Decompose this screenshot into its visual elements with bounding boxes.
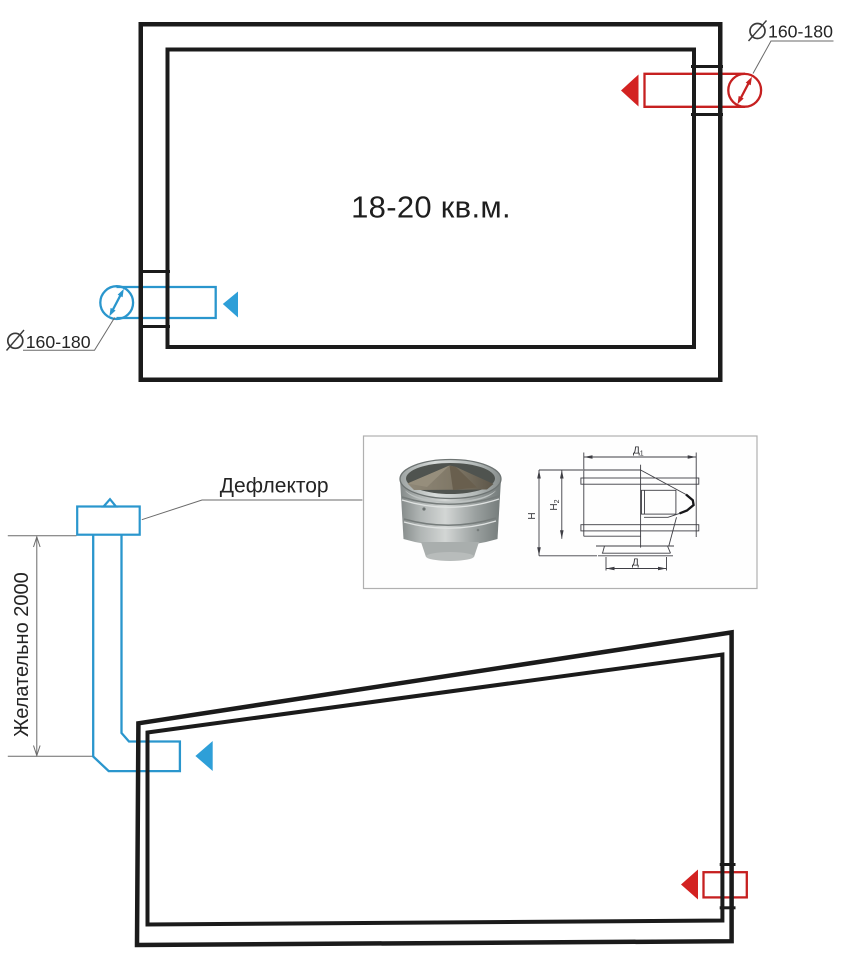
svg-text:Дефлектор: Дефлектор <box>220 475 329 498</box>
svg-text:Д: Д <box>632 558 639 569</box>
svg-text:Желательно 2000: Желательно 2000 <box>11 572 33 737</box>
svg-text:H: H <box>527 512 538 519</box>
svg-text:160-180: 160-180 <box>768 21 833 41</box>
svg-text:18-20 кв.м.: 18-20 кв.м. <box>351 189 511 224</box>
svg-text:160-180: 160-180 <box>26 332 91 352</box>
